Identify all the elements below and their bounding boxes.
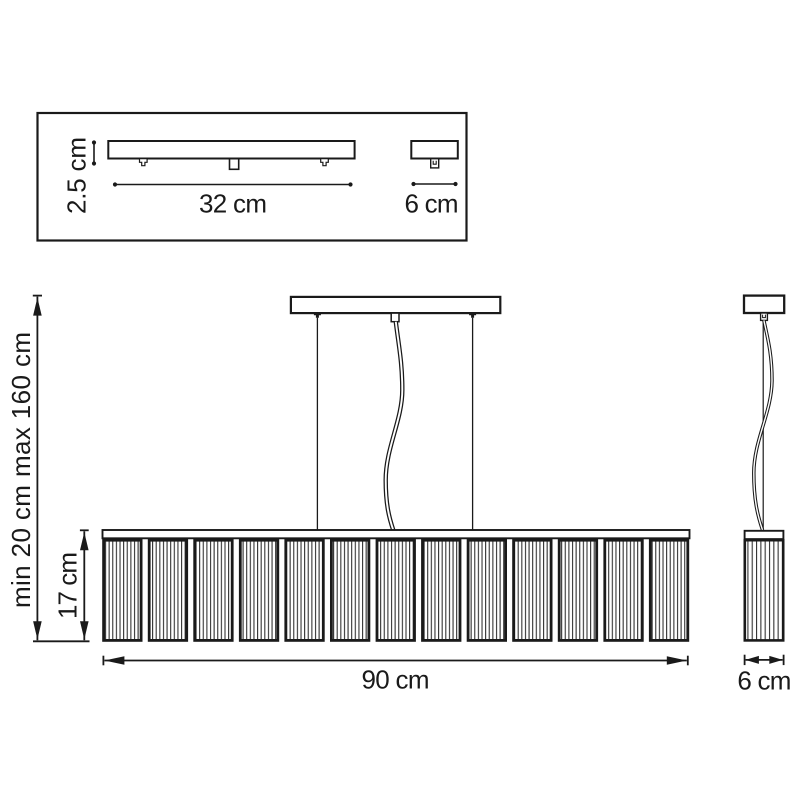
svg-text:32 cm: 32 cm (199, 189, 267, 219)
svg-text:17 cm: 17 cm (53, 552, 83, 619)
svg-text:6 cm: 6 cm (737, 666, 791, 696)
svg-text:min 20 cm max 160 cm: min 20 cm max 160 cm (6, 332, 36, 608)
svg-text:90 cm: 90 cm (362, 665, 430, 695)
svg-text:2.5 cm: 2.5 cm (62, 137, 92, 214)
svg-text:6 cm: 6 cm (405, 189, 459, 219)
